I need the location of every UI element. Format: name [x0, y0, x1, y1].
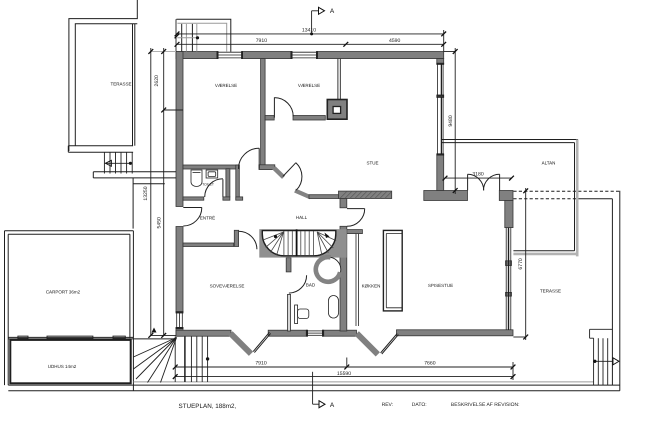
- svg-text:ALTAN: ALTAN: [542, 161, 556, 166]
- svg-text:HALL: HALL: [296, 215, 308, 220]
- svg-text:7910: 7910: [256, 38, 267, 44]
- svg-text:7660: 7660: [424, 361, 435, 367]
- svg-text:TERASSE: TERASSE: [540, 289, 561, 294]
- svg-text:6770: 6770: [518, 258, 524, 269]
- svg-text:15590: 15590: [337, 371, 351, 377]
- svg-text:STUEPLAN, 188m2,: STUEPLAN, 188m2,: [179, 403, 237, 410]
- svg-text:3180: 3180: [472, 172, 483, 178]
- svg-text:KØKKEN: KØKKEN: [362, 284, 381, 289]
- svg-text:BESKRIVELSE AF REVISION:: BESKRIVELSE AF REVISION:: [451, 402, 520, 408]
- svg-text:4590: 4590: [389, 38, 400, 44]
- svg-text:13410: 13410: [302, 27, 316, 33]
- svg-text:TERASSE: TERASSE: [110, 82, 131, 87]
- svg-text:UDHUS 14m2: UDHUS 14m2: [48, 364, 77, 369]
- svg-text:SOVEVÆRELSE: SOVEVÆRELSE: [210, 284, 245, 289]
- svg-text:VÆRELSE: VÆRELSE: [298, 83, 320, 88]
- svg-text:A: A: [330, 402, 335, 409]
- svg-text:A: A: [330, 8, 335, 15]
- svg-text:REV:: REV:: [382, 402, 393, 408]
- svg-text:2620: 2620: [154, 75, 160, 86]
- svg-text:ENTRÉ: ENTRÉ: [200, 216, 215, 221]
- svg-text:7910: 7910: [255, 361, 266, 367]
- svg-text:BAD: BAD: [306, 282, 316, 287]
- svg-text:5450: 5450: [156, 217, 162, 228]
- svg-text:DATO:: DATO:: [412, 402, 427, 408]
- svg-text:SPISESTUE: SPISESTUE: [428, 283, 453, 288]
- svg-text:9480: 9480: [448, 115, 454, 126]
- svg-text:TOILET: TOILET: [202, 182, 214, 186]
- svg-text:VÆRELSE: VÆRELSE: [215, 83, 237, 88]
- svg-text:STUE: STUE: [366, 161, 378, 166]
- svg-text:13250: 13250: [143, 186, 149, 200]
- svg-text:CARPORT 36m2: CARPORT 36m2: [46, 290, 81, 295]
